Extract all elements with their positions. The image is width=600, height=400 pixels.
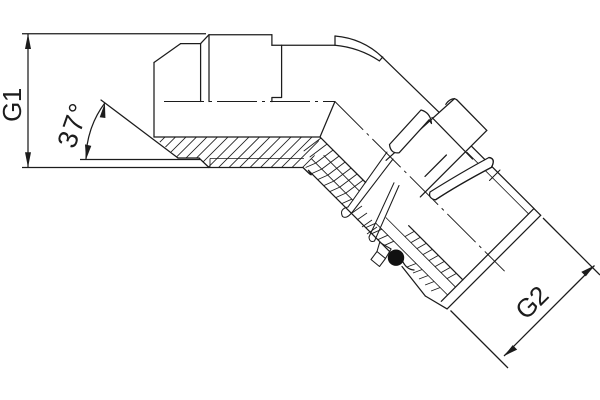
svg-text:G1: G1 [0,88,27,122]
svg-text:37°: 37° [51,98,95,152]
svg-text:G2: G2 [509,280,554,325]
